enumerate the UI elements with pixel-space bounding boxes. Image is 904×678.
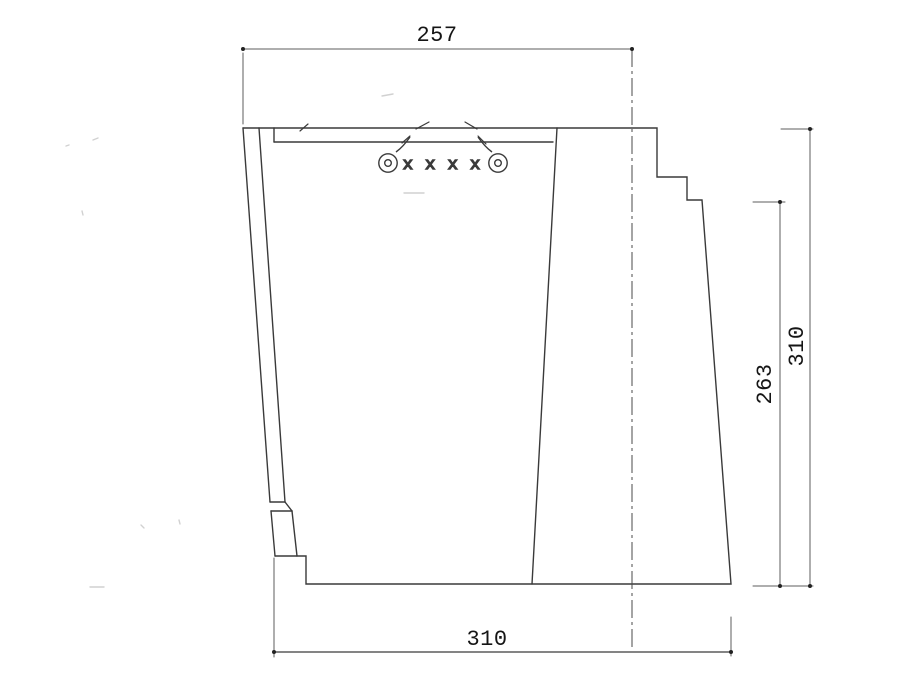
left-wall-inner-line — [259, 128, 285, 502]
left-wall-outer-line — [243, 128, 270, 502]
dim-dot-icon — [778, 584, 782, 588]
foot-left-edge — [271, 511, 275, 556]
dim-terminators-group — [241, 47, 812, 654]
dim-dot-icon — [808, 584, 812, 588]
scan-speck — [66, 145, 69, 146]
fastener-outer-circle — [489, 154, 507, 172]
fastener-row-marks: x x x x — [403, 156, 481, 175]
dim-dot-icon — [808, 127, 812, 131]
scan-speck — [82, 211, 83, 215]
dim-texts-group: 257 310 263 310 — [416, 23, 810, 652]
fastener-inner-circle — [385, 160, 392, 167]
scan-speck — [179, 520, 180, 524]
dim-dot-icon — [778, 200, 782, 204]
fastener-outer-circle — [379, 154, 397, 172]
dim-dot-icon — [272, 650, 276, 654]
dim-dot-icon — [241, 47, 245, 51]
technical-drawing-canvas: x x x x 257 310 263 310 — [0, 0, 904, 678]
scan-speck — [93, 138, 98, 140]
scan-artifacts-group — [66, 94, 424, 587]
part-outline-group — [243, 128, 731, 584]
dimensions-group — [243, 49, 813, 657]
dim-dot-icon — [729, 650, 733, 654]
scan-speck — [141, 525, 144, 528]
dim-text-right-inner-height: 263 — [753, 363, 778, 404]
dim-text-bottom-width: 310 — [466, 627, 507, 652]
scan-speck — [382, 94, 393, 96]
fastener-inner-circle — [495, 160, 502, 167]
fastener-leader-arc — [396, 137, 410, 152]
drawing-page: x x x x 257 310 263 310 — [0, 0, 904, 678]
outer-profile-path — [243, 128, 731, 584]
dim-dot-icon — [630, 47, 634, 51]
break-marks-group — [300, 122, 486, 144]
dim-text-right-outer-height: 310 — [785, 325, 810, 366]
inner-wall-right-line — [532, 128, 557, 584]
foot-step-chamfer-line — [285, 502, 292, 511]
fastener-leader-arc — [478, 137, 492, 152]
foot-right-edge — [292, 511, 297, 556]
dim-text-top-width: 257 — [416, 23, 457, 48]
